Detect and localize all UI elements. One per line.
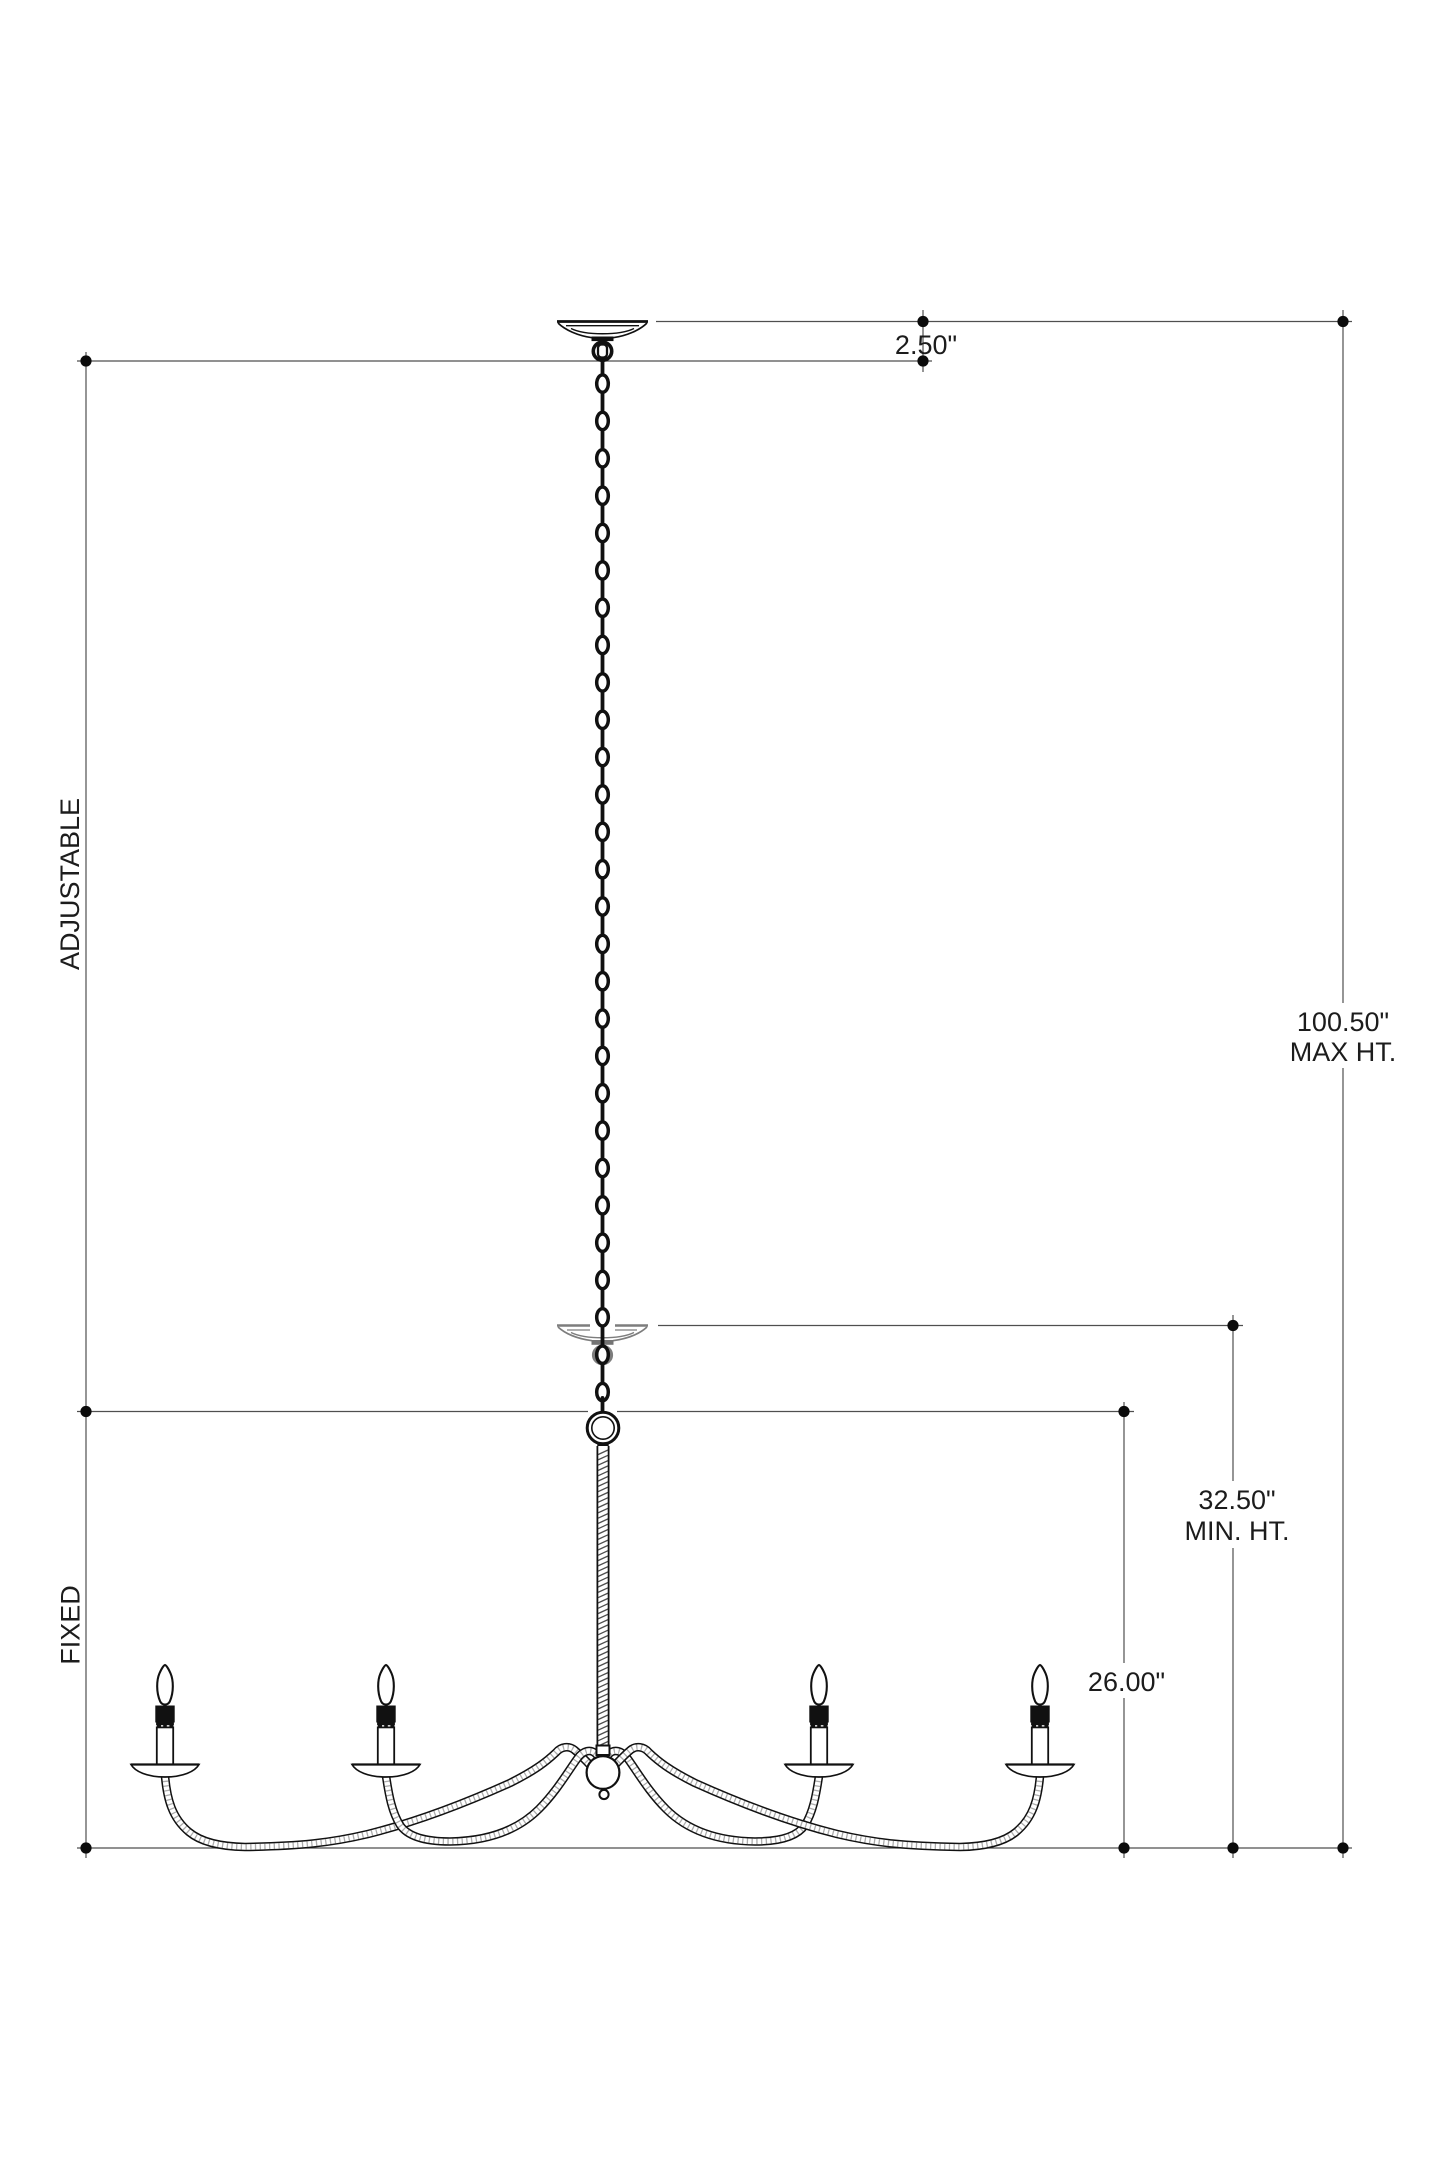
- svg-text:100.50": 100.50": [1297, 1007, 1389, 1037]
- svg-text:26.00": 26.00": [1088, 1667, 1165, 1697]
- svg-text:MIN. HT.: MIN. HT.: [1185, 1516, 1290, 1546]
- svg-text:32.50": 32.50": [1198, 1485, 1275, 1515]
- svg-text:FIXED: FIXED: [56, 1585, 86, 1665]
- svg-text:ADJUSTABLE: ADJUSTABLE: [55, 798, 85, 970]
- svg-text:MAX HT.: MAX HT.: [1290, 1037, 1397, 1067]
- svg-text:2.50": 2.50": [895, 330, 957, 360]
